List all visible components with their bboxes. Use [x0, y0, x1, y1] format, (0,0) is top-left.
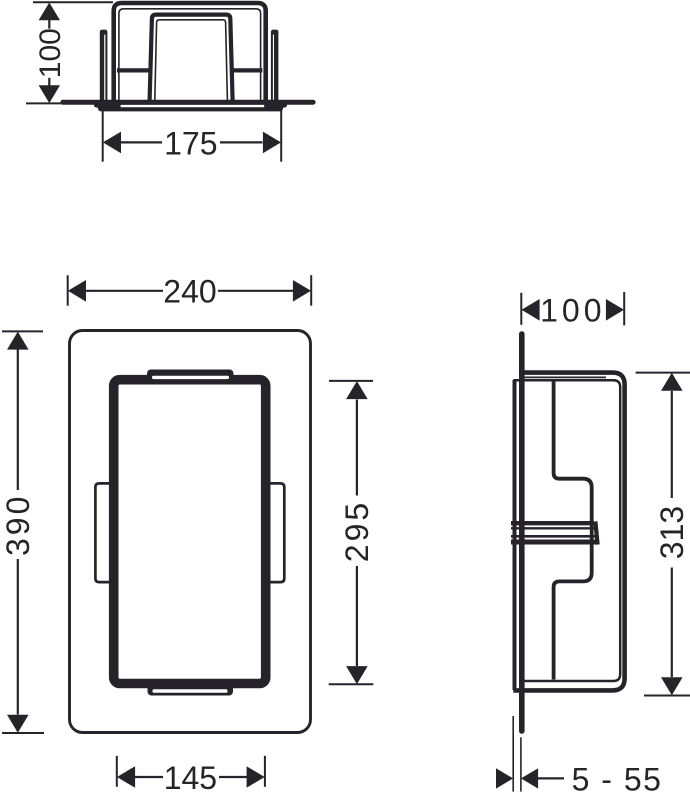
svg-text:240: 240 [163, 274, 216, 310]
svg-text:175: 175 [164, 125, 217, 161]
svg-text:100: 100 [34, 28, 67, 78]
svg-text:100: 100 [540, 293, 605, 329]
svg-text:5 - 55: 5 - 55 [572, 761, 663, 797]
svg-text:313: 313 [654, 506, 690, 559]
svg-text:390: 390 [0, 494, 36, 556]
svg-text:145: 145 [164, 760, 217, 796]
svg-text:295: 295 [339, 500, 375, 562]
